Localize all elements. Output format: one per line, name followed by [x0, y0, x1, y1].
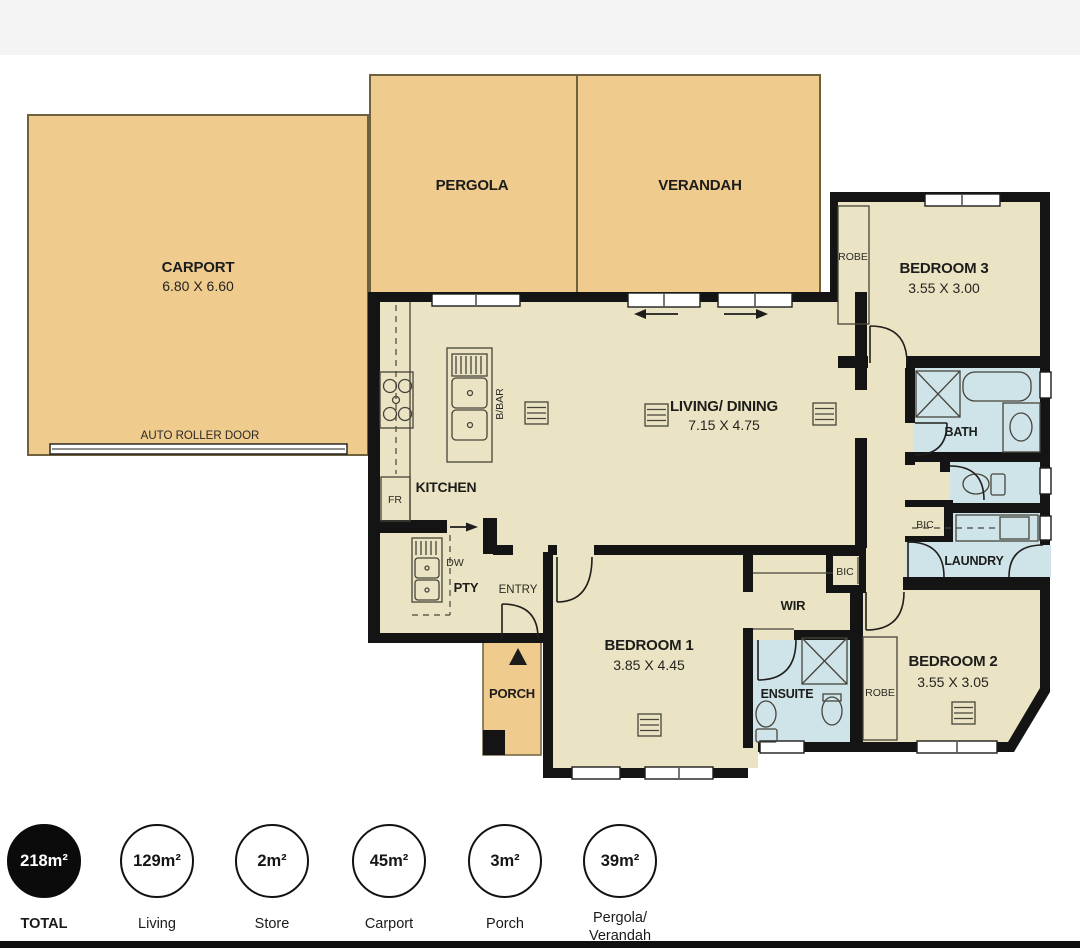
label-robe-bedroom2: ROBE	[865, 687, 895, 699]
label-entry: ENTRY	[499, 584, 538, 596]
label-ensuite: ENSUITE	[761, 687, 814, 701]
label-kitchen: KITCHEN	[416, 479, 477, 495]
label-bath: BATH	[945, 425, 978, 439]
label-pty: PTY	[454, 580, 479, 595]
bottom-divider-bar	[0, 941, 1080, 948]
floorplan-page: CARPORT 6.80 X 6.60 AUTO ROLLER DOOR PER…	[0, 0, 1080, 948]
laundry-door-opening	[1040, 545, 1051, 577]
label-bic-hall: BIC	[916, 519, 934, 531]
label-bedroom1: BEDROOM 1	[604, 637, 693, 654]
label-bbar: B/BAR	[494, 388, 506, 420]
floorplan-svg: CARPORT 6.80 X 6.60 AUTO ROLLER DOOR PER…	[0, 0, 1080, 948]
bedroom1-window-left	[572, 767, 620, 779]
label-pergola: PERGOLA	[436, 177, 509, 194]
dims-bedroom3: 3.55 X 3.00	[908, 280, 980, 296]
dims-bedroom2: 3.55 X 3.05	[917, 674, 989, 690]
wc-window	[1040, 468, 1051, 494]
label-porch: PORCH	[489, 686, 535, 701]
room-bath	[913, 368, 1040, 452]
label-carport: CARPORT	[162, 259, 235, 276]
label-bic-wir: BIC	[836, 566, 854, 578]
dims-living: 7.15 X 4.75	[688, 417, 760, 433]
dims-carport: 6.80 X 6.60	[162, 278, 234, 294]
label-dw: DW	[446, 557, 464, 569]
label-bedroom2: BEDROOM 2	[908, 653, 997, 670]
label-fr: FR	[388, 494, 402, 506]
ensuite-window	[760, 741, 804, 753]
label-wir: WIR	[781, 598, 806, 613]
label-living: LIVING/ DINING	[670, 398, 778, 415]
porch-pier	[483, 730, 505, 755]
label-auto-roller-door: AUTO ROLLER DOOR	[141, 430, 260, 442]
dims-bedroom1: 3.85 X 4.45	[613, 657, 685, 673]
bath-window	[1040, 372, 1051, 398]
label-robe-bedroom3: ROBE	[838, 251, 868, 263]
label-verandah: VERANDAH	[658, 177, 741, 194]
label-bedroom3: BEDROOM 3	[899, 260, 988, 277]
label-laundry: LAUNDRY	[944, 554, 1004, 568]
laundry-window	[1040, 516, 1051, 540]
